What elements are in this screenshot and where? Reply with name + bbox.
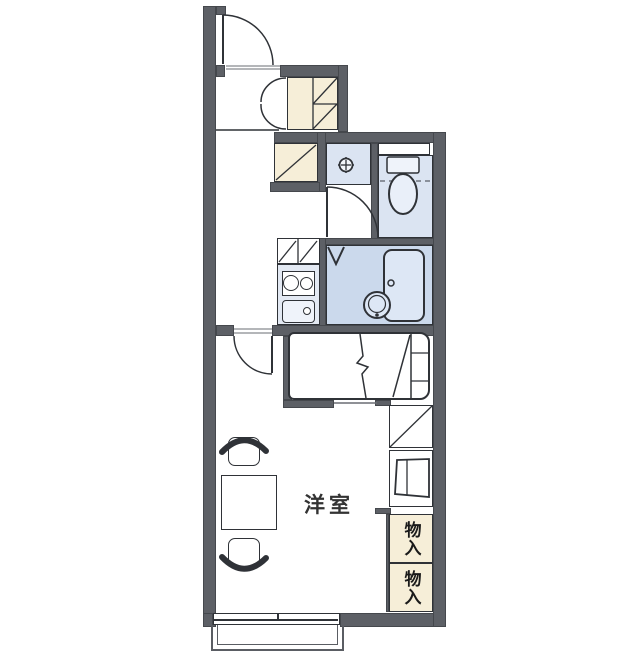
room-door-icon	[234, 329, 272, 374]
sink-drain-icon	[303, 307, 311, 315]
floorplan: 物入 物入	[0, 0, 640, 662]
closet	[287, 77, 338, 130]
balcony-inner	[217, 625, 338, 645]
window-center-tick	[277, 614, 279, 620]
shoe-cabinet	[274, 143, 318, 182]
burner-large-icon	[283, 275, 299, 291]
cabinet	[389, 450, 433, 507]
right-exterior-wall	[433, 132, 446, 627]
chair-seat-bottom	[228, 538, 260, 567]
room-label: 洋室	[304, 489, 354, 519]
range-hood-shelf	[277, 238, 320, 264]
sanitary-top-wall	[274, 132, 446, 143]
entrance-door-icon	[223, 15, 280, 69]
sliding-window	[213, 613, 340, 625]
cross-wall-left	[216, 325, 234, 336]
bed	[288, 332, 430, 400]
left-exterior-wall	[203, 6, 216, 627]
toilet-left-wall	[371, 143, 378, 240]
top-wall-stub	[216, 6, 226, 15]
bath-top-wall	[318, 238, 446, 245]
toilet-window	[378, 143, 430, 155]
entry-left-stub	[216, 65, 225, 77]
refrigerator-space	[389, 405, 433, 448]
bednook-bottom-wall	[283, 400, 334, 408]
closet-right-wall	[338, 65, 348, 132]
window-rail	[214, 619, 338, 621]
shoebox-bottom-wall	[270, 182, 320, 192]
burner-small-icon	[300, 277, 313, 290]
bathtub	[383, 249, 425, 322]
chair-seat-top	[228, 437, 260, 466]
storage-1-label: 物入	[390, 515, 432, 562]
storage-2: 物入	[389, 563, 433, 612]
toilet-room	[378, 155, 433, 238]
storage-2-label: 物入	[390, 564, 432, 611]
closet-door-icon	[261, 78, 286, 129]
storage-1: 物入	[389, 514, 433, 563]
bottom-wall-right	[340, 613, 446, 627]
table	[221, 475, 277, 530]
washing-machine-pan	[326, 143, 371, 185]
